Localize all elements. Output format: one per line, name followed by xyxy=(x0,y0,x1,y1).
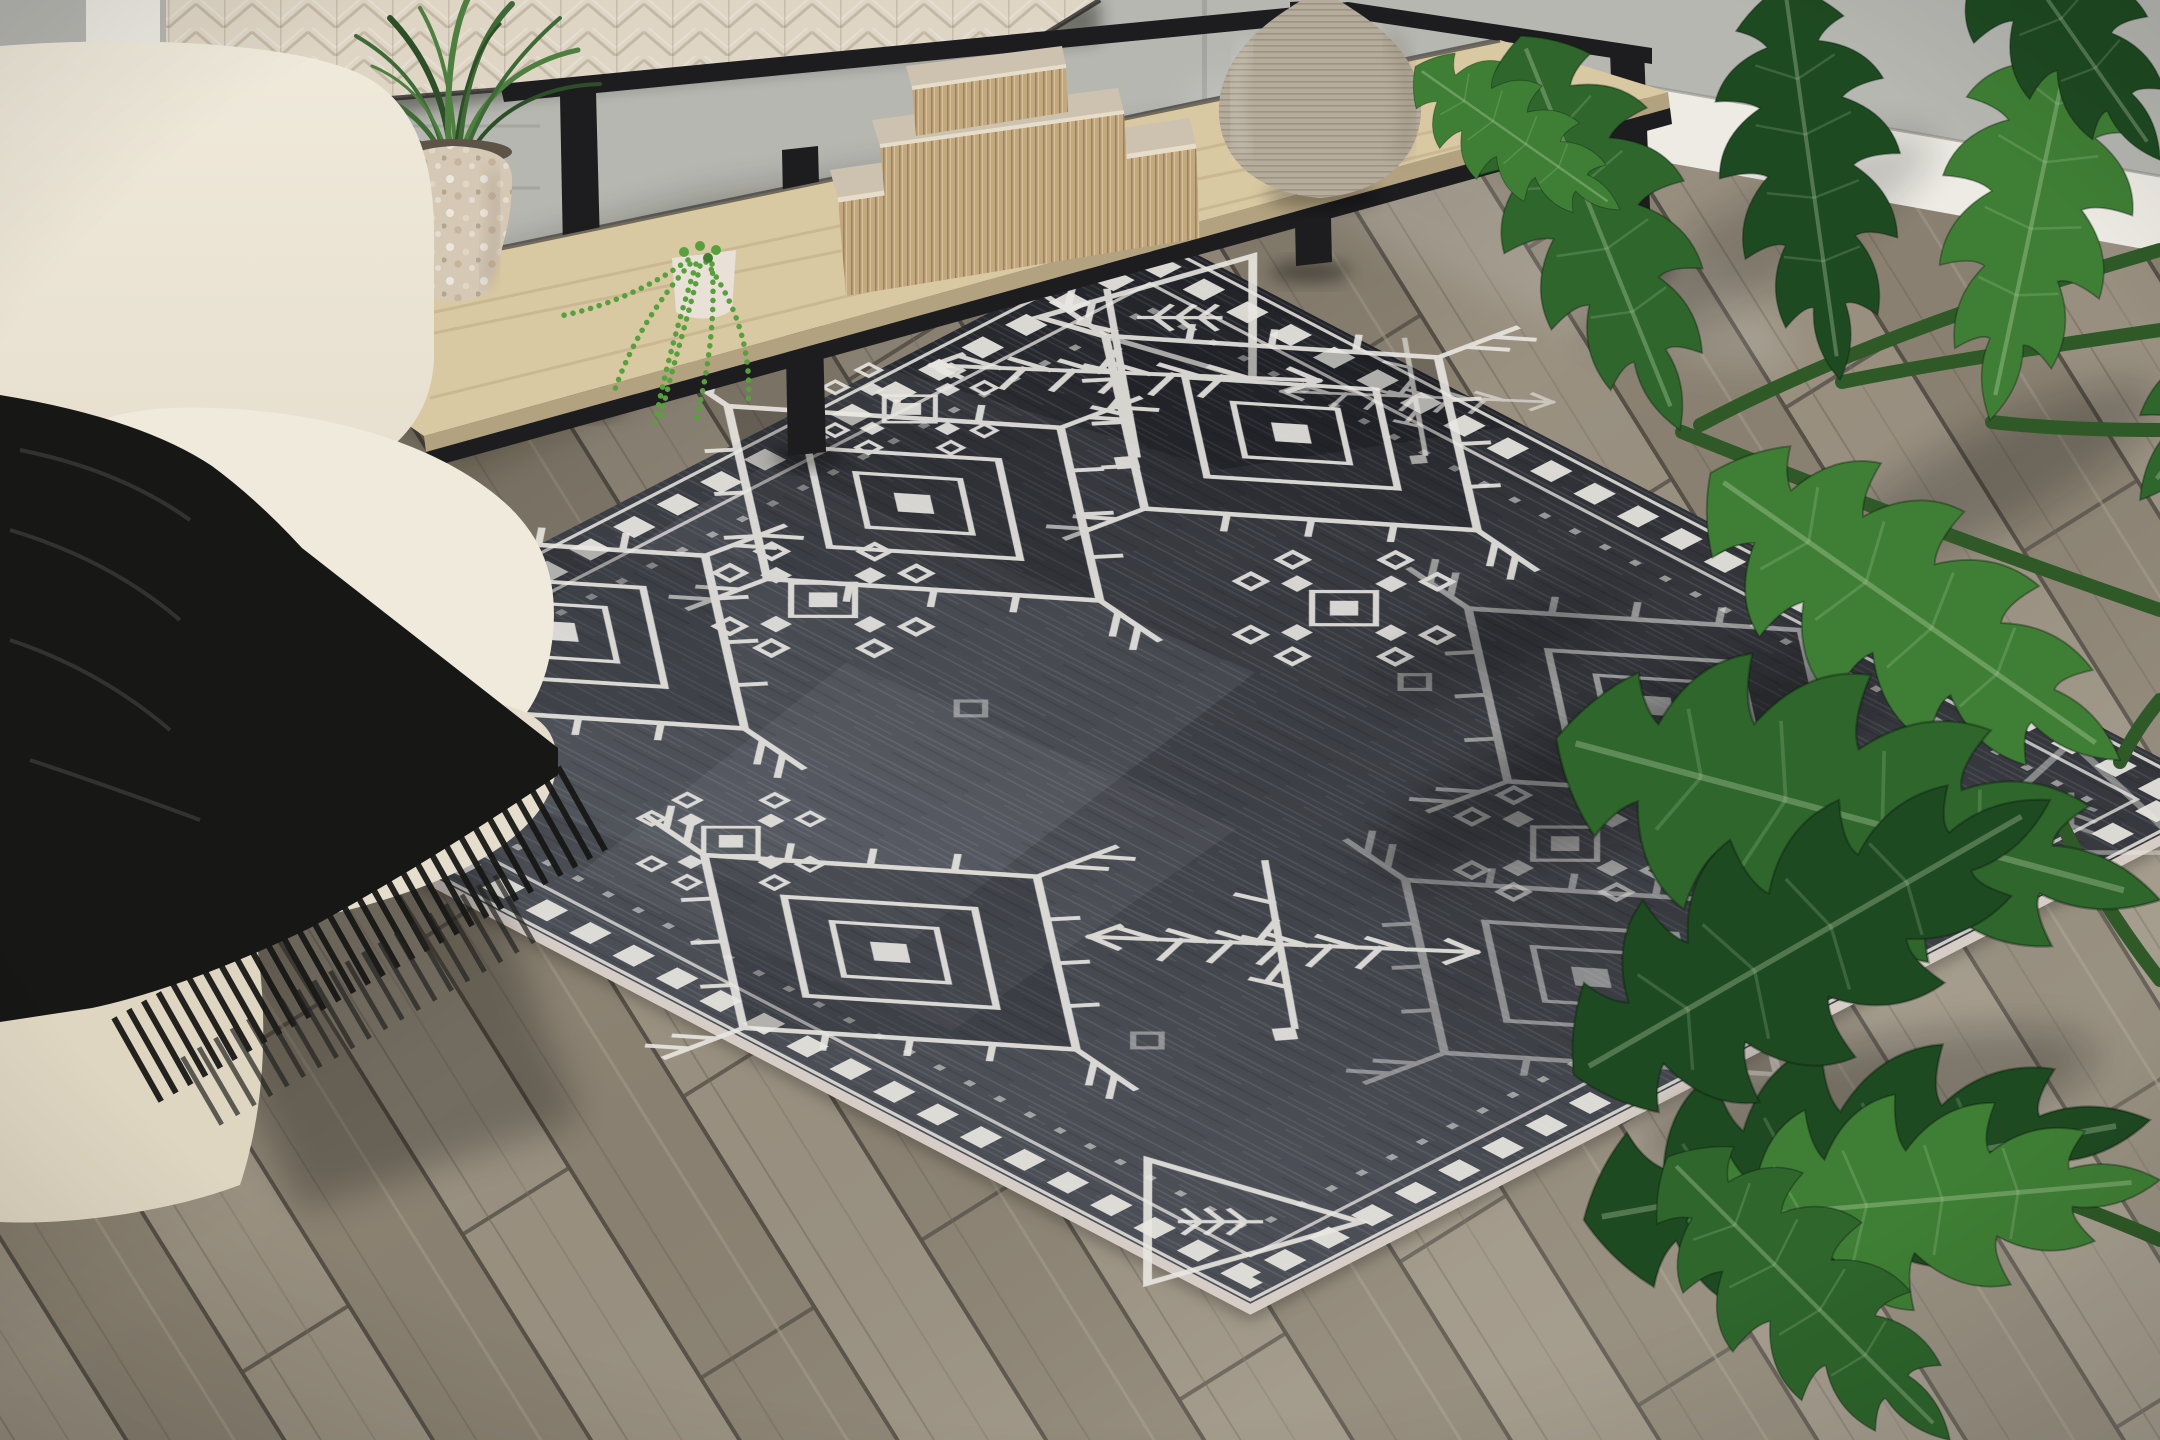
living-room-photo xyxy=(0,0,2160,1440)
scene-svg xyxy=(0,0,2160,1440)
vignette xyxy=(0,0,2160,1440)
